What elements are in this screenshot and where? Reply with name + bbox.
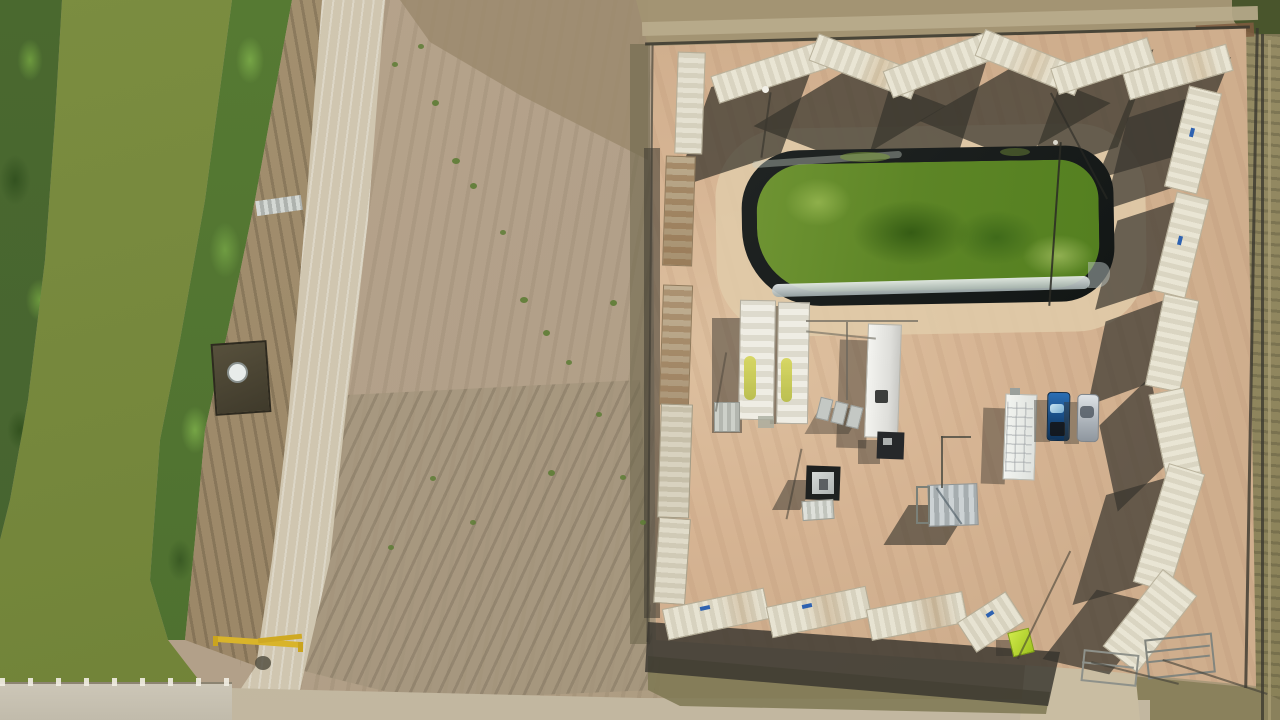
aerial-photo-canvas	[0, 0, 1280, 720]
bush	[520, 297, 528, 303]
pipe-run-1	[806, 320, 918, 322]
yellow-gate-post-left	[213, 636, 218, 646]
yellow-gate-post-right	[298, 642, 303, 652]
bush	[548, 470, 555, 476]
algae-patch-top-2	[1000, 148, 1030, 156]
light-pole-dot	[762, 86, 769, 93]
container-left-2	[662, 156, 696, 267]
bush	[418, 44, 424, 49]
container-left-5	[653, 517, 691, 605]
container-left-3	[659, 285, 693, 406]
trailer-vent	[875, 390, 888, 403]
shed-pipe-vertical	[941, 436, 943, 488]
container-left-4	[657, 403, 693, 518]
bush	[392, 62, 398, 67]
silver-car	[1077, 394, 1100, 442]
container-left-1	[674, 52, 706, 155]
black-skid	[877, 432, 905, 460]
pit-round-tank	[227, 362, 248, 383]
culvert-dark-spot	[255, 656, 271, 670]
bush	[430, 476, 436, 481]
bush	[596, 412, 602, 417]
fence-track-right-dark	[1261, 30, 1264, 720]
frac-unit-1-tank	[744, 356, 756, 400]
pond-pole-top-dot	[1053, 140, 1058, 145]
bush	[388, 545, 394, 550]
bridge-guardrail-posts	[0, 678, 232, 686]
pickup-windshield	[1050, 404, 1064, 413]
shed-pipe-rack	[916, 486, 930, 524]
wellhead-core	[819, 479, 828, 490]
algae-patch-top	[840, 152, 890, 162]
bush	[566, 360, 572, 365]
pickup-bed	[1050, 422, 1065, 436]
small-stairs	[758, 416, 774, 428]
trailer-long	[864, 323, 902, 438]
pond-water	[756, 159, 1100, 293]
bush	[470, 183, 477, 189]
bridge-deck	[0, 684, 232, 720]
bush	[452, 158, 460, 164]
frac-unit-2-tank	[781, 358, 792, 402]
fence-track-right-light	[1268, 40, 1271, 720]
rv-trailer-panel-grid	[1005, 402, 1033, 473]
rv-trailer-ladder	[1010, 388, 1020, 395]
shed-pipe-horizontal	[941, 436, 971, 438]
bush	[432, 100, 439, 106]
bush	[470, 520, 476, 525]
bush	[543, 330, 550, 336]
corrugated-shed	[927, 483, 978, 527]
bush	[500, 230, 506, 235]
bush	[610, 300, 617, 306]
car-glass	[1080, 406, 1094, 418]
bush	[620, 475, 626, 480]
black-skid-detail	[883, 438, 892, 445]
small-skid	[714, 402, 740, 432]
bush	[640, 520, 646, 525]
unit-below-wellhead	[801, 499, 834, 521]
